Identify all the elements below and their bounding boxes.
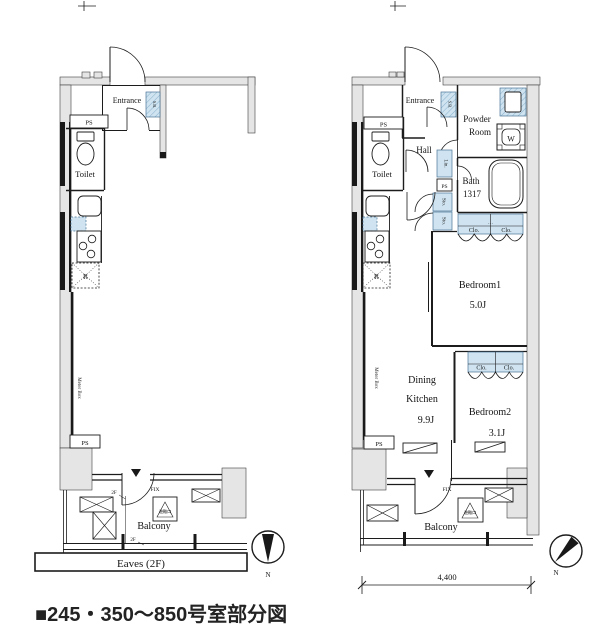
counter-hatch: [363, 217, 377, 231]
refrigerator-label: R: [83, 272, 88, 281]
balcony: 避難口 Balcony 2F 2F: [63, 489, 247, 553]
linen-label: Lin.: [443, 159, 448, 167]
floorplan-left: S.B. Entrance PS Toilet R Meter Box: [35, 1, 284, 579]
floorplan-canvas: S.B. Entrance PS Toilet R Meter Box: [0, 0, 612, 640]
dimension: 4,400: [358, 572, 535, 594]
compass-icon: N: [550, 535, 582, 577]
toilet-tank: [372, 132, 389, 141]
floor-mark: 2F: [111, 491, 117, 496]
front-door: [405, 47, 440, 82]
dining-kitchen-size-label: 9.9J: [418, 415, 435, 426]
dining-kitchen-label: Kitchen: [406, 394, 438, 405]
evacuation-hatch: 避難口: [153, 497, 177, 521]
fix-window-label: FIX: [151, 487, 160, 493]
entrance-label: Entrance: [406, 96, 435, 105]
bedroom2-label: Bedroom2: [469, 407, 511, 418]
closet-dots: …: [488, 221, 493, 226]
balcony-rail: [63, 544, 247, 550]
closet-label: Clo.: [504, 366, 515, 372]
balcony-door: [122, 473, 154, 505]
bedroom1: Bedroom1 5.0J: [429, 231, 528, 346]
cut-mark: [78, 1, 96, 11]
balcony: 避難口 Balcony: [360, 488, 533, 552]
eaves-label: Eaves (2F): [117, 558, 165, 570]
closet-row-bed2: Clo. Clo.: [455, 352, 527, 379]
toilet-label: Toilet: [372, 169, 392, 179]
floorplan-right: S.B. Entrance Hall PS Toilet Powder Room: [352, 1, 582, 594]
entrance-area: S.B. Entrance: [402, 85, 456, 138]
bedroom2-size-label: 3.1J: [489, 428, 506, 439]
bathroom: Bath 1317: [458, 158, 528, 213]
powder-room-label: Room: [469, 127, 491, 137]
balcony-label: Balcony: [424, 522, 457, 533]
powder-room-label: Powder: [463, 114, 491, 124]
bedroom1-label: Bedroom1: [459, 280, 501, 291]
evacuation-hatch-label: 避難口: [159, 508, 172, 515]
closet-label: Clo.: [476, 366, 487, 372]
north-label: N: [553, 569, 558, 577]
toilet-bowl: [372, 143, 389, 165]
toilet-room: Toilet: [66, 128, 105, 191]
folding-door: [458, 234, 523, 241]
caption: ■245・350〜850号室部分図: [35, 602, 287, 626]
storage-label: Sto.: [441, 217, 446, 225]
pipe-space-label: PS: [85, 120, 93, 127]
storage-label: Sto.: [441, 198, 446, 206]
shoe-box-label: S.B.: [448, 101, 453, 108]
south-wall: FIX: [387, 442, 527, 514]
pipe-space-label: PS: [380, 122, 388, 129]
counter-hatch: [71, 217, 86, 231]
pipe-space-label: PS: [81, 440, 89, 447]
bathtub: [489, 160, 523, 208]
bedroom1-size-label: 5.0J: [470, 300, 487, 311]
dimension-label: 4,400: [437, 572, 456, 582]
toilet-label: Toilet: [75, 169, 95, 179]
front-door: [110, 47, 145, 82]
storage-column: Lin. PS Sto. Sto.: [415, 150, 457, 232]
cut-mark: [390, 1, 406, 11]
toilet-bowl: [77, 143, 94, 165]
toilet-tank: [77, 132, 94, 141]
balcony-label: Balcony: [137, 521, 170, 532]
washer-label: W: [507, 135, 515, 144]
pipe-space-label: PS: [441, 184, 447, 190]
washer-pan: W: [497, 124, 525, 150]
section-marker-icon: [424, 470, 434, 478]
section-marker-icon: [131, 469, 141, 477]
floor-mark: 2F: [130, 538, 136, 543]
bath-label: Bath: [463, 176, 480, 186]
entrance-area: S.B. Entrance: [102, 85, 160, 131]
dining-kitchen: Dining Kitchen 9.9J R: [363, 192, 438, 426]
pipe-space-label: PS: [375, 441, 383, 448]
compass-icon: N: [252, 531, 284, 579]
balcony-rail: [360, 539, 533, 546]
hall-door: [407, 192, 435, 220]
closet-label: Clo.: [501, 228, 512, 234]
meter-box-label: Meter Box: [76, 377, 81, 399]
evacuation-hatch: 避難口: [458, 498, 483, 522]
dining-kitchen-label: Dining: [408, 375, 436, 386]
closet-label: Clo.: [469, 228, 480, 234]
walls: [60, 72, 255, 518]
entrance-label: Entrance: [113, 96, 142, 105]
bath-size-label: 1317: [463, 189, 482, 199]
meter-box-label: Meter Box: [373, 367, 378, 389]
kitchen: R: [71, 196, 102, 288]
refrigerator-label: R: [374, 272, 379, 281]
closet-row-bath: … Clo. Clo.: [458, 214, 523, 241]
folding-door: [468, 372, 523, 379]
sink: [78, 196, 101, 216]
balcony-door: [415, 478, 451, 514]
evacuation-hatch-label: 避難口: [464, 509, 477, 516]
north-label: N: [265, 571, 270, 579]
shoe-box-label: S.B.: [152, 101, 157, 108]
sink: [366, 196, 389, 216]
floorplan-page: S.B. Entrance PS Toilet R Meter Box: [0, 0, 612, 640]
